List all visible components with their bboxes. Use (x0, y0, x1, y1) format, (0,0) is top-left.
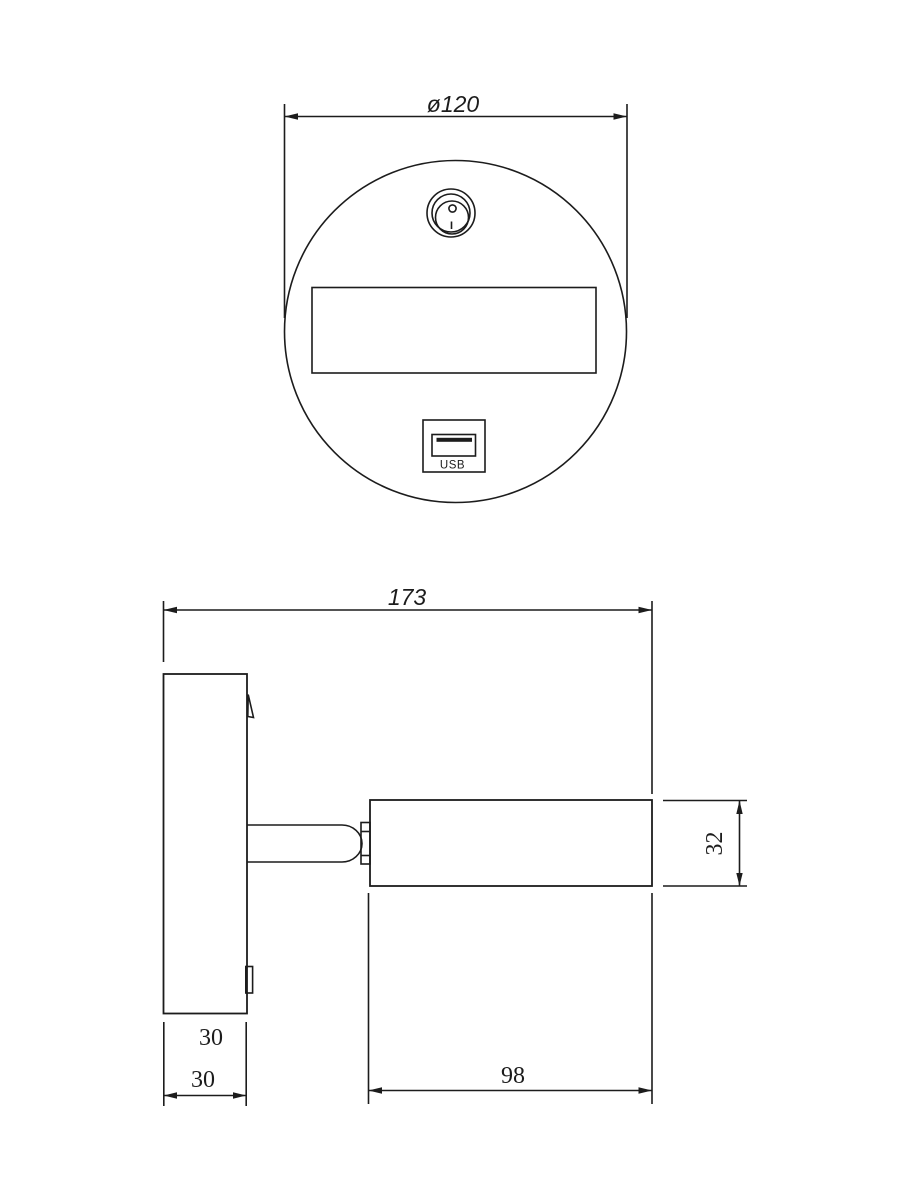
front-view: ø120 USB (285, 91, 628, 503)
arrow-right-icon (639, 607, 653, 613)
side-view: 173 32 (164, 584, 748, 1106)
lamp-head (370, 800, 652, 886)
backplate (164, 674, 248, 1014)
side-switch-lever (248, 695, 254, 718)
arrow-left-icon (285, 113, 299, 120)
overall-width-label: 173 (388, 584, 427, 610)
backplate-dimension: 30 30 (164, 1022, 246, 1106)
head-height-label: 32 (702, 832, 728, 856)
usb-port-icon: USB (423, 420, 485, 472)
usb-tongue (437, 438, 473, 442)
diameter-dimension: ø120 (285, 91, 628, 318)
arrow-left-icon (164, 607, 178, 613)
arrow-down-icon (736, 873, 742, 886)
diameter-label: ø120 (427, 91, 480, 117)
switch-dot (449, 205, 456, 212)
toggle-switch-icon (427, 189, 475, 237)
faceplate-window (312, 288, 596, 374)
arrow-up-icon (736, 801, 742, 815)
faceplate-circle (285, 161, 627, 503)
head-length-dimension: 98 (369, 893, 653, 1104)
overall-width-dimension: 173 (164, 584, 653, 794)
usb-socket (432, 435, 476, 457)
backplate-dim-label-lower: 30 (191, 1067, 215, 1093)
head-height-dimension: 32 (663, 801, 747, 887)
switch-rocker (436, 201, 469, 234)
arm (247, 825, 362, 862)
arrow-left-icon (369, 1087, 383, 1093)
wall-lamp-dimension-drawing: ø120 USB 173 (0, 0, 900, 1200)
arrow-right-icon (614, 113, 628, 120)
head-length-label: 98 (501, 1063, 525, 1089)
arrow-right-icon (233, 1092, 246, 1098)
usb-label: USB (440, 460, 465, 472)
backplate-dim-label-upper: 30 (199, 1025, 223, 1051)
arrow-left-icon (164, 1092, 177, 1098)
technical-drawing-canvas: ø120 USB 173 (0, 0, 900, 1200)
arrow-right-icon (639, 1087, 653, 1093)
